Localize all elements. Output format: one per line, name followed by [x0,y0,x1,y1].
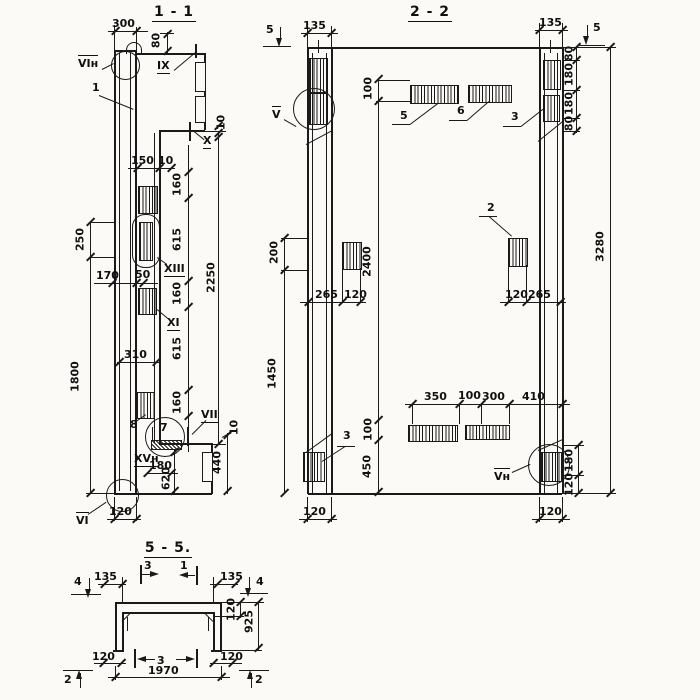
mark-XIII: XIII [164,263,185,277]
h-line [376,101,410,102]
embed-plate [138,288,157,315]
v-line [195,44,197,58]
key-plate [342,242,362,270]
h-line [503,126,521,127]
dim-120-bot-left: 120 [303,506,326,517]
callout-7: 7 [160,422,168,433]
dim-120-bl-55: 120 [92,651,115,662]
h-line [376,80,410,81]
h-line [210,663,242,664]
dim-100-top: 100 [363,72,374,106]
v-line [284,238,285,270]
v-line [318,40,319,53]
dim-300: 300 [112,18,135,29]
dim-440: 440 [212,446,223,480]
arrow-right [186,656,195,662]
h-line [308,47,562,49]
callout-3-bot: 3 [343,430,351,441]
dim-265-right: 265 [528,289,551,300]
v-line [610,47,611,494]
dim-120-55: 120 [226,593,237,627]
dim-450: 450 [362,450,373,484]
mark-IX: IX [157,60,170,74]
h-line [108,677,230,678]
cut-mark-3-top: 3 [144,560,152,571]
v-line [378,101,379,421]
cut-mark-2-left: 2 [64,674,72,685]
leader-line [99,95,134,110]
dim-170: 170 [96,270,119,281]
dim-1800: 1800 [70,357,81,397]
dim-620: 620 [161,462,172,496]
dim-135-left: 135 [303,20,326,31]
h-line [159,130,205,132]
dim-120-right: 120 [505,289,528,300]
dim-2250: 2250 [206,256,217,300]
v-line [90,222,91,494]
mark-XVn: XVн [134,453,159,467]
dim-310: 310 [124,349,147,360]
dim-120-bot-right: 120 [539,506,562,517]
rebar-zone [303,452,325,482]
rebar-mesh [408,425,458,442]
dim-100-bot: 100 [363,413,374,447]
dim-300: 300 [482,391,505,402]
dim-200: 200 [269,236,280,270]
dim-160: 160 [172,277,183,311]
dim-1450: 1450 [267,354,278,394]
cut-mark-4-left: 4 [74,576,82,587]
v-line [134,649,136,668]
dim-10b: 10 [158,155,173,166]
rebar-mesh [410,85,459,104]
v-line [258,602,259,650]
key-notch [195,96,206,123]
mark-Vn: Vн [494,468,510,482]
v-line [115,602,117,650]
dim-615: 615 [172,332,183,366]
h-line [500,302,566,303]
h-line [263,46,291,47]
callout-6: 6 [457,105,465,116]
h-line [308,493,562,495]
h-line [577,45,605,46]
leader-line [88,502,107,515]
leader-line [521,108,545,127]
dim-250: 250 [75,223,86,257]
leader-line [192,420,207,435]
v-line [509,404,510,424]
dim-120-br: 120 [564,470,575,500]
dim-150: 150 [131,155,154,166]
arrow-left [179,572,188,578]
leader-line [489,216,512,237]
dim-615: 615 [172,223,183,257]
arrow-up [247,670,253,679]
arrow-down [583,36,589,45]
section-5-5-title: 5 - 5. [144,541,192,558]
v-line [218,133,219,445]
v-line [284,270,285,494]
leader-line [410,103,439,125]
embed-plate [138,186,158,214]
dim-80b: 80 [564,109,575,139]
dim-135-left-55: 135 [94,571,117,582]
h-line [115,602,220,604]
cut-mark-1-top: 1 [180,560,188,571]
v-line [550,40,551,53]
section-1-1-title: 1 - 1 [152,5,196,22]
rebar-zone [543,60,561,90]
dim-410: 410 [522,391,545,402]
dim-135-right-55: 135 [220,571,243,582]
mark-V: V [272,106,281,120]
rebar-mesh [468,85,512,103]
mark-X: X [203,135,211,149]
v-line [196,649,198,668]
detail-circle-V [293,88,335,130]
section-2-2-title: 2 - 2 [408,5,452,22]
h-line [204,131,226,132]
dim-180a: 180 [564,60,575,90]
blueprint-sheet: 1 - 1 300 80 VIн 1 IX 10 X [0,0,700,700]
cut-mark-2-right: 2 [255,674,263,685]
dim-tick [374,487,383,496]
v-line [152,427,153,441]
callout-1: 1 [92,82,100,93]
dim-120: 120 [109,506,132,517]
dim-925: 925 [244,605,255,639]
v-line [378,421,379,494]
h-line [90,222,114,223]
callout-5: 5 [400,110,408,121]
dim-80: 80 [151,24,162,58]
leader-line [306,130,332,145]
dim-tick [280,488,289,497]
v-line [578,445,579,494]
h-line [90,257,114,258]
dim-135-right: 135 [539,17,562,28]
arrow-up [76,670,82,679]
leader-line [538,121,564,142]
callout-2: 2 [487,202,495,213]
dim-2400: 2400 [362,240,373,284]
rebar-mesh [465,425,510,440]
h-line [71,594,101,595]
v-line [213,577,214,602]
dim-50: 50 [135,269,150,280]
h-line [122,612,213,614]
callout-3-top: 3 [511,111,519,122]
dim-3280: 3280 [595,225,606,269]
leader-line [284,119,297,127]
h-line [405,404,570,405]
cut-mark-5-right: 5 [593,22,601,33]
h-line [449,120,467,121]
v-line [331,26,332,47]
detail-circle-VIn [111,51,140,80]
cut-mark-5-left: 5 [266,24,274,35]
rebar-zone [543,95,560,122]
dim-10c: 10 [229,411,240,445]
dim-120-left: 120 [344,289,367,300]
arrow-left [137,656,146,662]
v-line [119,53,120,491]
leader-line [467,101,490,121]
h-line [239,670,269,671]
v-line [539,47,541,494]
v-line [412,404,413,424]
v-line [189,122,191,141]
dim-120-br-55: 120 [220,651,243,662]
dim-160: 160 [172,168,183,202]
key-plate [508,238,528,267]
dim-265-left: 265 [315,289,338,300]
h-line [300,302,366,303]
v-line [220,602,222,650]
h-line [392,124,410,125]
v-line [208,617,209,631]
v-line [342,268,343,302]
v-line [213,612,215,650]
dim-100-mid: 100 [458,390,481,401]
v-line [459,404,460,424]
dim-160: 160 [172,386,183,420]
v-line [187,427,189,446]
cut-mark-4-right: 4 [256,576,264,587]
mark-VIn: VIн [78,55,98,69]
v-line [481,404,482,424]
dim-350: 350 [424,391,447,402]
h-line [240,593,268,594]
dim-1970: 1970 [148,665,179,676]
v-line [159,130,161,443]
v-line [188,145,189,452]
h-line [94,283,158,284]
v-line [127,617,128,631]
leader-line [306,433,333,453]
embed-plate [139,222,153,261]
v-line [196,566,198,585]
key-notch [195,62,206,92]
